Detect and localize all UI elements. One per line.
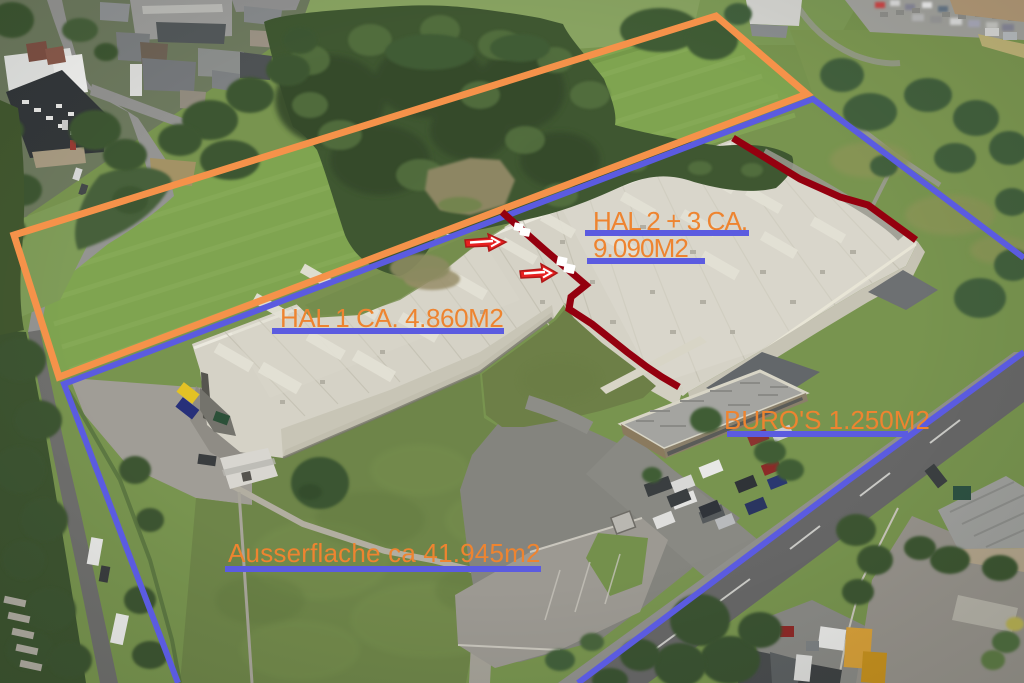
- svg-text:BURO'S 1.250M2: BURO'S 1.250M2: [724, 405, 930, 435]
- svg-text:Ausserflache ca 41.945m2: Ausserflache ca 41.945m2: [228, 538, 541, 568]
